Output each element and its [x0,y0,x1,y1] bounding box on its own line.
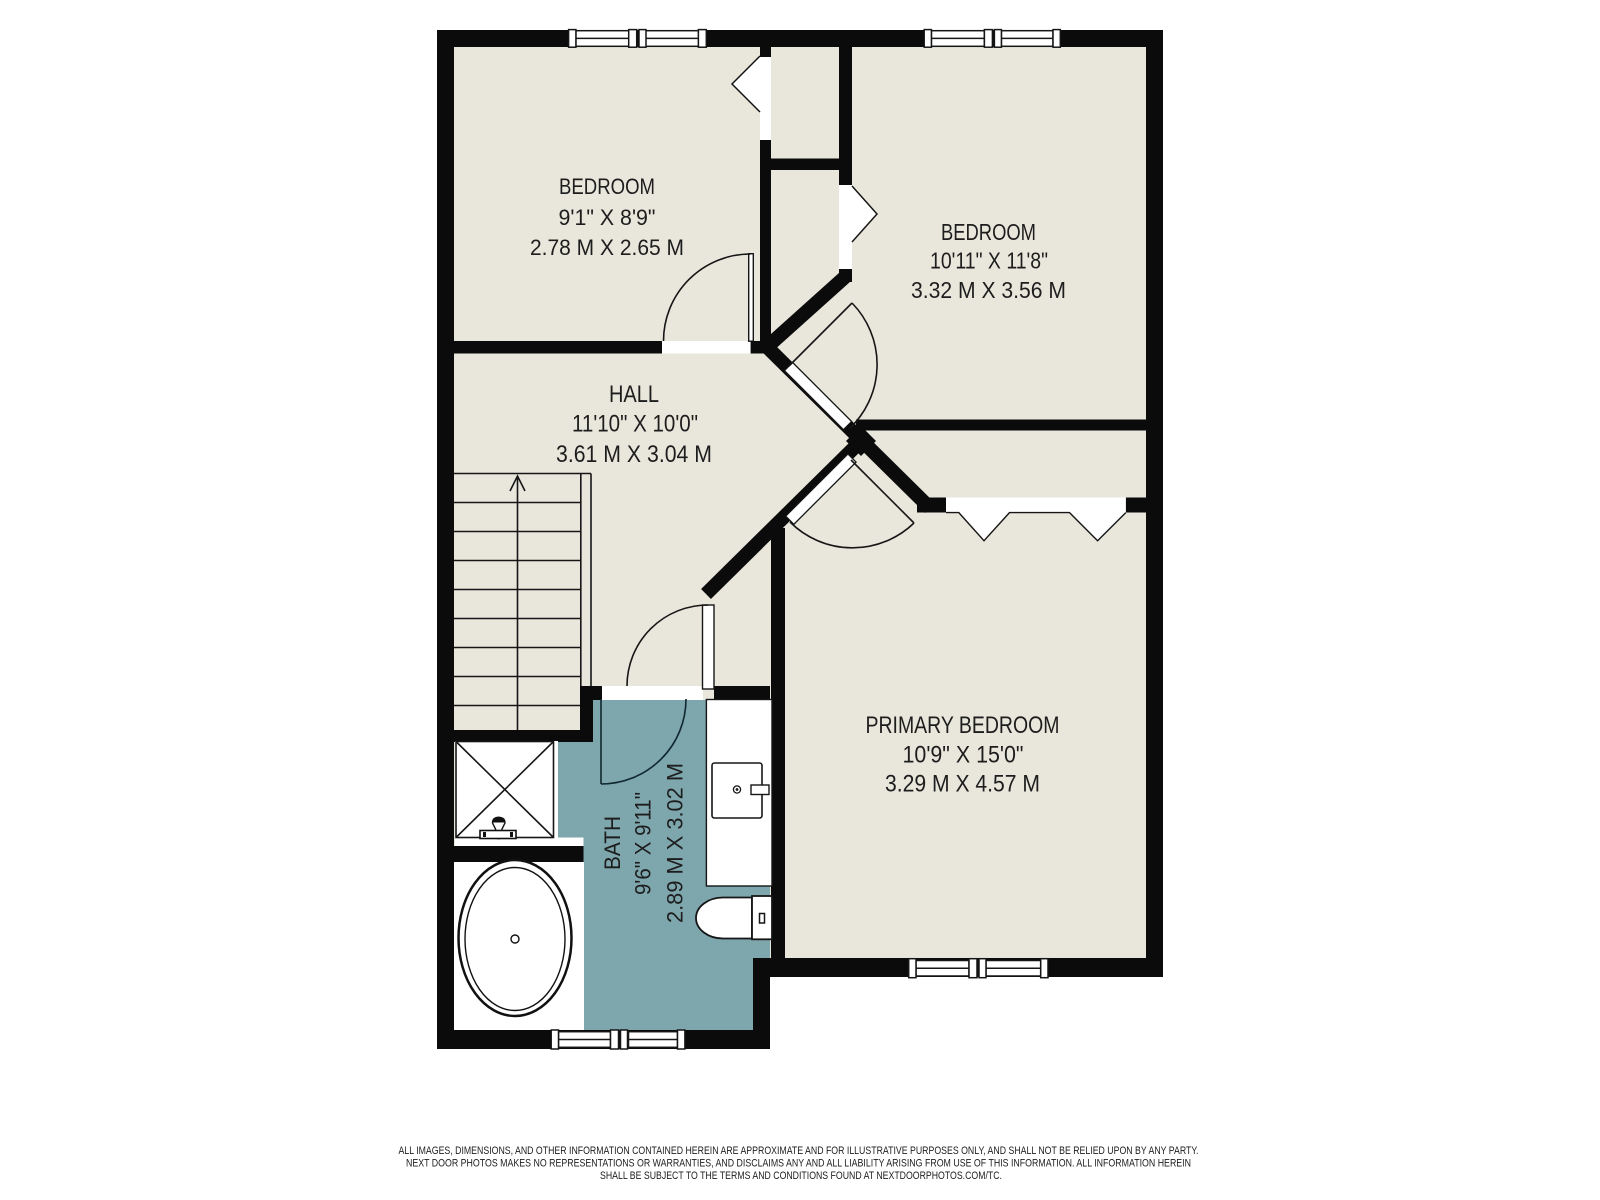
svg-text:HALL: HALL [609,381,659,408]
svg-text:9'6" X 9'11": 9'6" X 9'11" [631,792,656,895]
svg-text:NEXT DOOR PHOTOS MAKES NO REPR: NEXT DOOR PHOTOS MAKES NO REPRESENTATION… [406,1158,1191,1170]
svg-text:SHALL BE SUBJECT TO THE TERMS: SHALL BE SUBJECT TO THE TERMS AND CONDIT… [600,1170,1002,1182]
svg-text:BEDROOM: BEDROOM [559,174,655,199]
svg-text:10'11" X 11'8": 10'11" X 11'8" [930,248,1048,274]
svg-text:9'1" X 8'9": 9'1" X 8'9" [559,205,656,230]
svg-text:2.78 M X 2.65 M: 2.78 M X 2.65 M [530,235,684,260]
svg-text:11'10" X 10'0": 11'10" X 10'0" [572,411,698,438]
svg-text:BATH: BATH [600,816,625,870]
svg-text:3.32 M X 3.56 M: 3.32 M X 3.56 M [911,277,1066,303]
svg-text:10'9" X 15'0": 10'9" X 15'0" [903,742,1024,769]
svg-text:ALL IMAGES, DIMENSIONS, AND OT: ALL IMAGES, DIMENSIONS, AND OTHER INFORM… [399,1145,1199,1157]
svg-text:3.29 M X 4.57 M: 3.29 M X 4.57 M [885,771,1040,798]
svg-text:PRIMARY BEDROOM: PRIMARY BEDROOM [866,712,1060,739]
svg-text:2.89 M X 3.02 M: 2.89 M X 3.02 M [663,763,688,923]
svg-text:3.61 M X 3.04 M: 3.61 M X 3.04 M [556,441,712,468]
svg-text:BEDROOM: BEDROOM [941,219,1036,245]
